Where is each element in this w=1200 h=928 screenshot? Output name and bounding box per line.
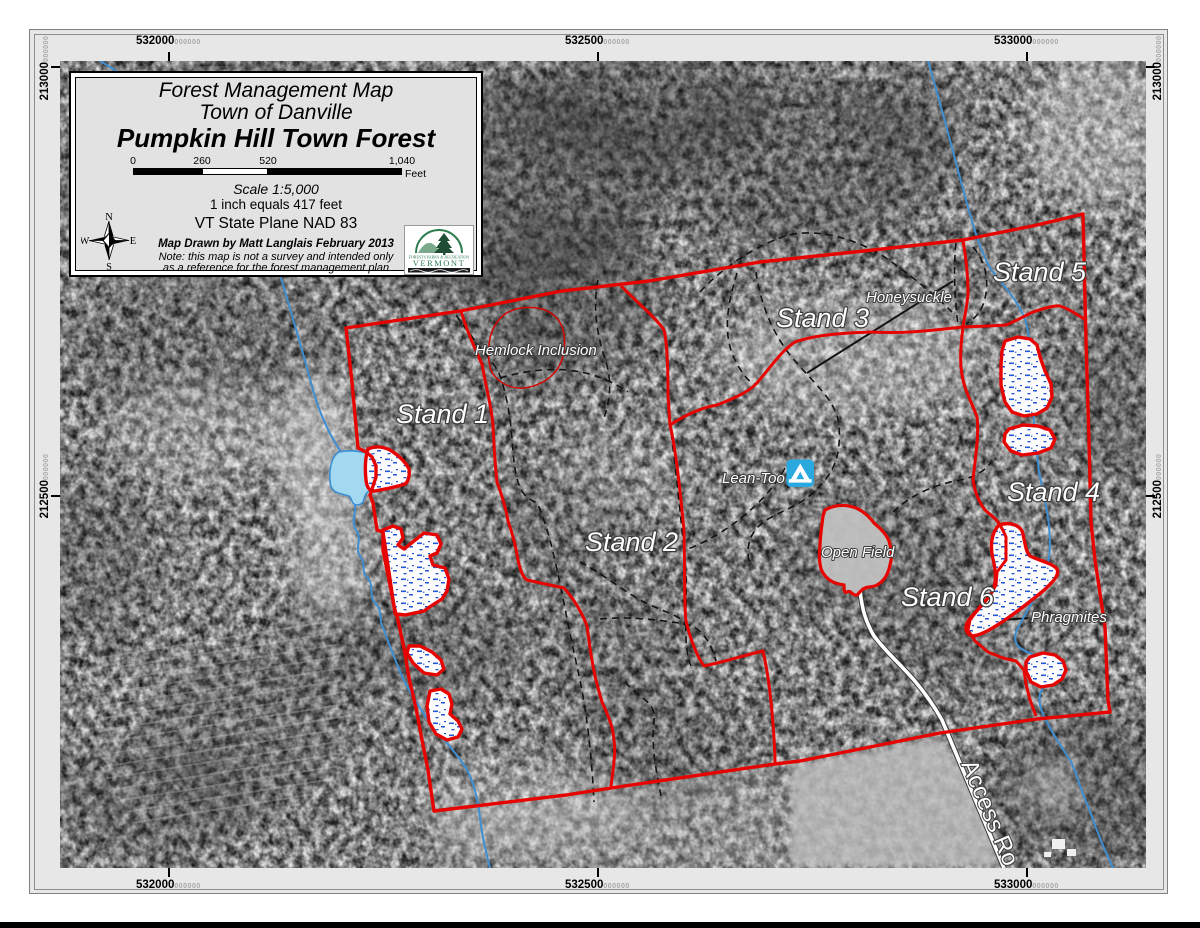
svg-text:S: S (106, 262, 112, 271)
svg-text:E: E (130, 236, 136, 247)
svg-text:Open Field: Open Field (821, 544, 895, 561)
svg-text:VERMONT: VERMONT (413, 258, 466, 268)
svg-text:Stand 3: Stand 3 (776, 303, 869, 333)
svg-text:W: W (81, 236, 90, 247)
svg-text:Hemlock Inclusion: Hemlock Inclusion (475, 342, 597, 359)
svg-text:Stand 2: Stand 2 (585, 527, 678, 557)
svg-text:Stand 4: Stand 4 (1007, 477, 1100, 507)
svg-text:Stand 5: Stand 5 (993, 257, 1087, 287)
svg-text:Stand 1: Stand 1 (396, 399, 489, 429)
svg-text:Lean-Too: Lean-Too (722, 470, 785, 487)
svg-text:Honeysuckle: Honeysuckle (866, 289, 952, 306)
svg-text:Phragmites: Phragmites (1031, 609, 1107, 626)
svg-text:Stand 6: Stand 6 (901, 582, 995, 612)
